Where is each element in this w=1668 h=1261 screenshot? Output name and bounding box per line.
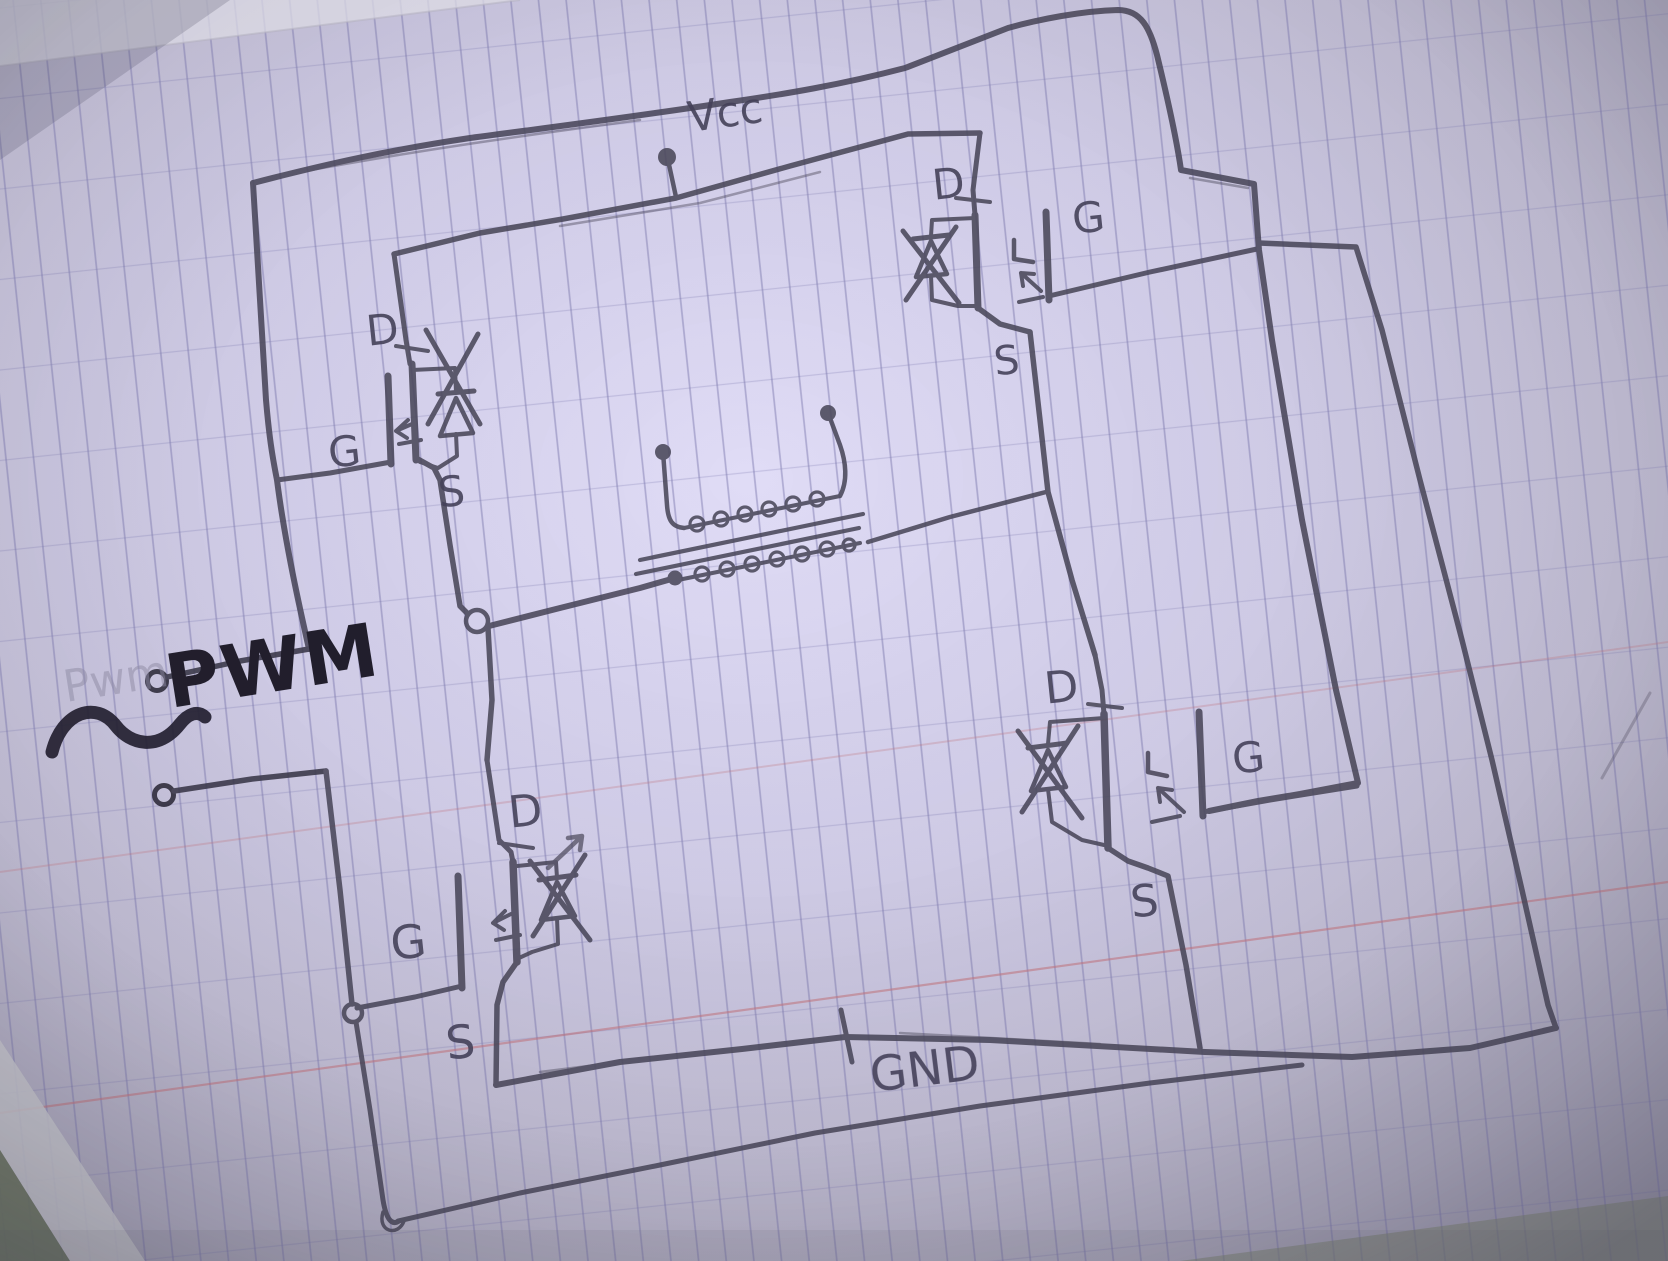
- vcc-terminal-dot: [658, 148, 676, 166]
- gate-bar: [1046, 212, 1049, 300]
- photo-of-circuit-sketch: Vcc GND Pwm PWM D G S D G S D G S D G S: [0, 0, 1668, 1261]
- drain-label: D: [930, 158, 967, 210]
- drain-label: D: [1042, 660, 1081, 714]
- channel-bar: [1104, 714, 1108, 848]
- source-label: S: [436, 466, 468, 518]
- gate-bar: [458, 876, 462, 988]
- drain-label: D: [364, 304, 401, 356]
- channel-bar: [975, 215, 978, 308]
- vcc-label: Vcc: [685, 83, 766, 142]
- gate-label: G: [388, 913, 429, 970]
- gate-label: G: [326, 426, 363, 478]
- channel-bar: [412, 364, 416, 460]
- channel-bar: [513, 862, 517, 962]
- gate-label: G: [1230, 732, 1267, 784]
- drain-label: D: [506, 784, 545, 838]
- source-label: S: [1128, 875, 1161, 929]
- source-label: S: [443, 1014, 478, 1071]
- gate-bar: [388, 376, 391, 464]
- circuit-sketch-canvas: Vcc GND Pwm PWM D G S D G S D G S D G S: [0, 0, 1668, 1261]
- gate-bar: [1199, 712, 1203, 816]
- source-label: S: [992, 337, 1022, 385]
- gate-label: G: [1070, 192, 1107, 244]
